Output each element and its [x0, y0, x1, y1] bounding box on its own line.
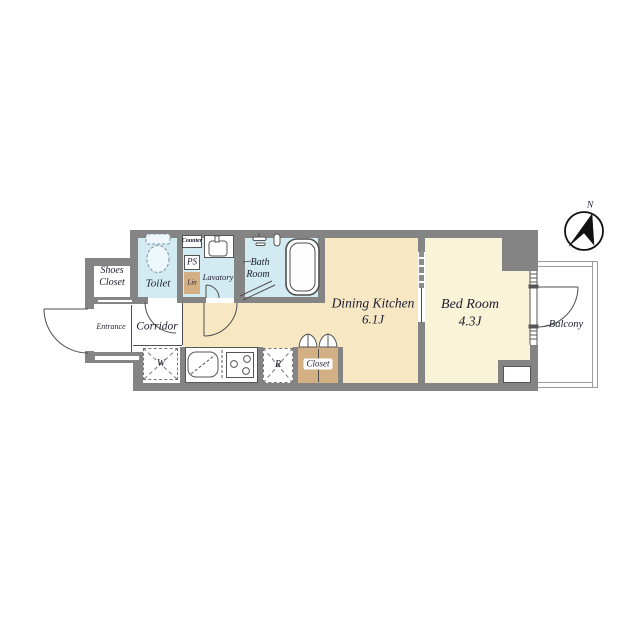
- lavatory-label: Lavatory: [203, 273, 234, 282]
- bathtub: [286, 239, 319, 295]
- corridor-label: Corridor: [136, 321, 178, 333]
- washer-label: W: [157, 359, 165, 369]
- plan-linework: [0, 0, 640, 640]
- entrance-label: Entrance: [96, 323, 125, 331]
- shower-bar: [256, 243, 265, 246]
- shoes-closet-label-line2: Closet: [99, 278, 125, 288]
- balcony-window: [529, 271, 538, 345]
- balcony-label: Balcony: [549, 320, 583, 331]
- lavatory-door-arc: [204, 303, 237, 336]
- bath-room-label-line2: Room: [246, 270, 269, 280]
- window-hatch-bottom: [530, 331, 537, 339]
- pipe-space-label: PS: [187, 258, 197, 267]
- lavatory-sink: [209, 236, 227, 256]
- dining-kitchen-size: 6.1J: [362, 313, 384, 326]
- refrigerator-label: R: [275, 360, 281, 370]
- toilet-bowl: [147, 246, 169, 273]
- lavatory-inner-door-arc: [206, 285, 219, 298]
- counter-label: Counter: [182, 238, 202, 244]
- window-jamb-bottom: [529, 325, 538, 328]
- closet-label: Closet: [303, 359, 332, 370]
- entrance-door-arc: [44, 309, 88, 353]
- dining-kitchen-label: Dining Kitchen: [332, 296, 415, 310]
- stove-burner-2: [231, 361, 238, 368]
- stove-burner-3: [243, 368, 250, 375]
- bed-room-size: 4.3J: [459, 314, 482, 328]
- sink-basin: [209, 241, 227, 256]
- toilet-tank: [146, 234, 170, 244]
- toilet-label: Toilet: [146, 279, 171, 290]
- compass-north-label: N: [587, 201, 593, 211]
- kitchen-sink-diagonal: [191, 355, 215, 374]
- shower-column: [274, 234, 280, 246]
- toilet-fixture: [146, 234, 170, 273]
- floor-plan: Shoes Closet Toilet Counter PS Lin Lavat…: [0, 0, 640, 640]
- window-hatch-top: [530, 274, 537, 282]
- bath-folding-door: [240, 281, 275, 300]
- linen-label: Lin: [187, 280, 196, 287]
- compass: [565, 212, 603, 250]
- sink-faucet: [215, 236, 219, 242]
- window-jamb-top: [529, 285, 538, 288]
- shower-fixture: [253, 233, 280, 246]
- stove-burner-1: [244, 356, 251, 363]
- compass-needle-icon: [569, 214, 594, 246]
- bed-room-label: Bed Room: [441, 298, 499, 312]
- shoes-closet-label-line1: Shoes: [100, 266, 123, 276]
- closet-folding-doors: [299, 334, 337, 347]
- kitchen-fixtures: [188, 350, 250, 380]
- bath-room-label-line1: Bath: [251, 258, 270, 268]
- shower-head: [253, 237, 266, 241]
